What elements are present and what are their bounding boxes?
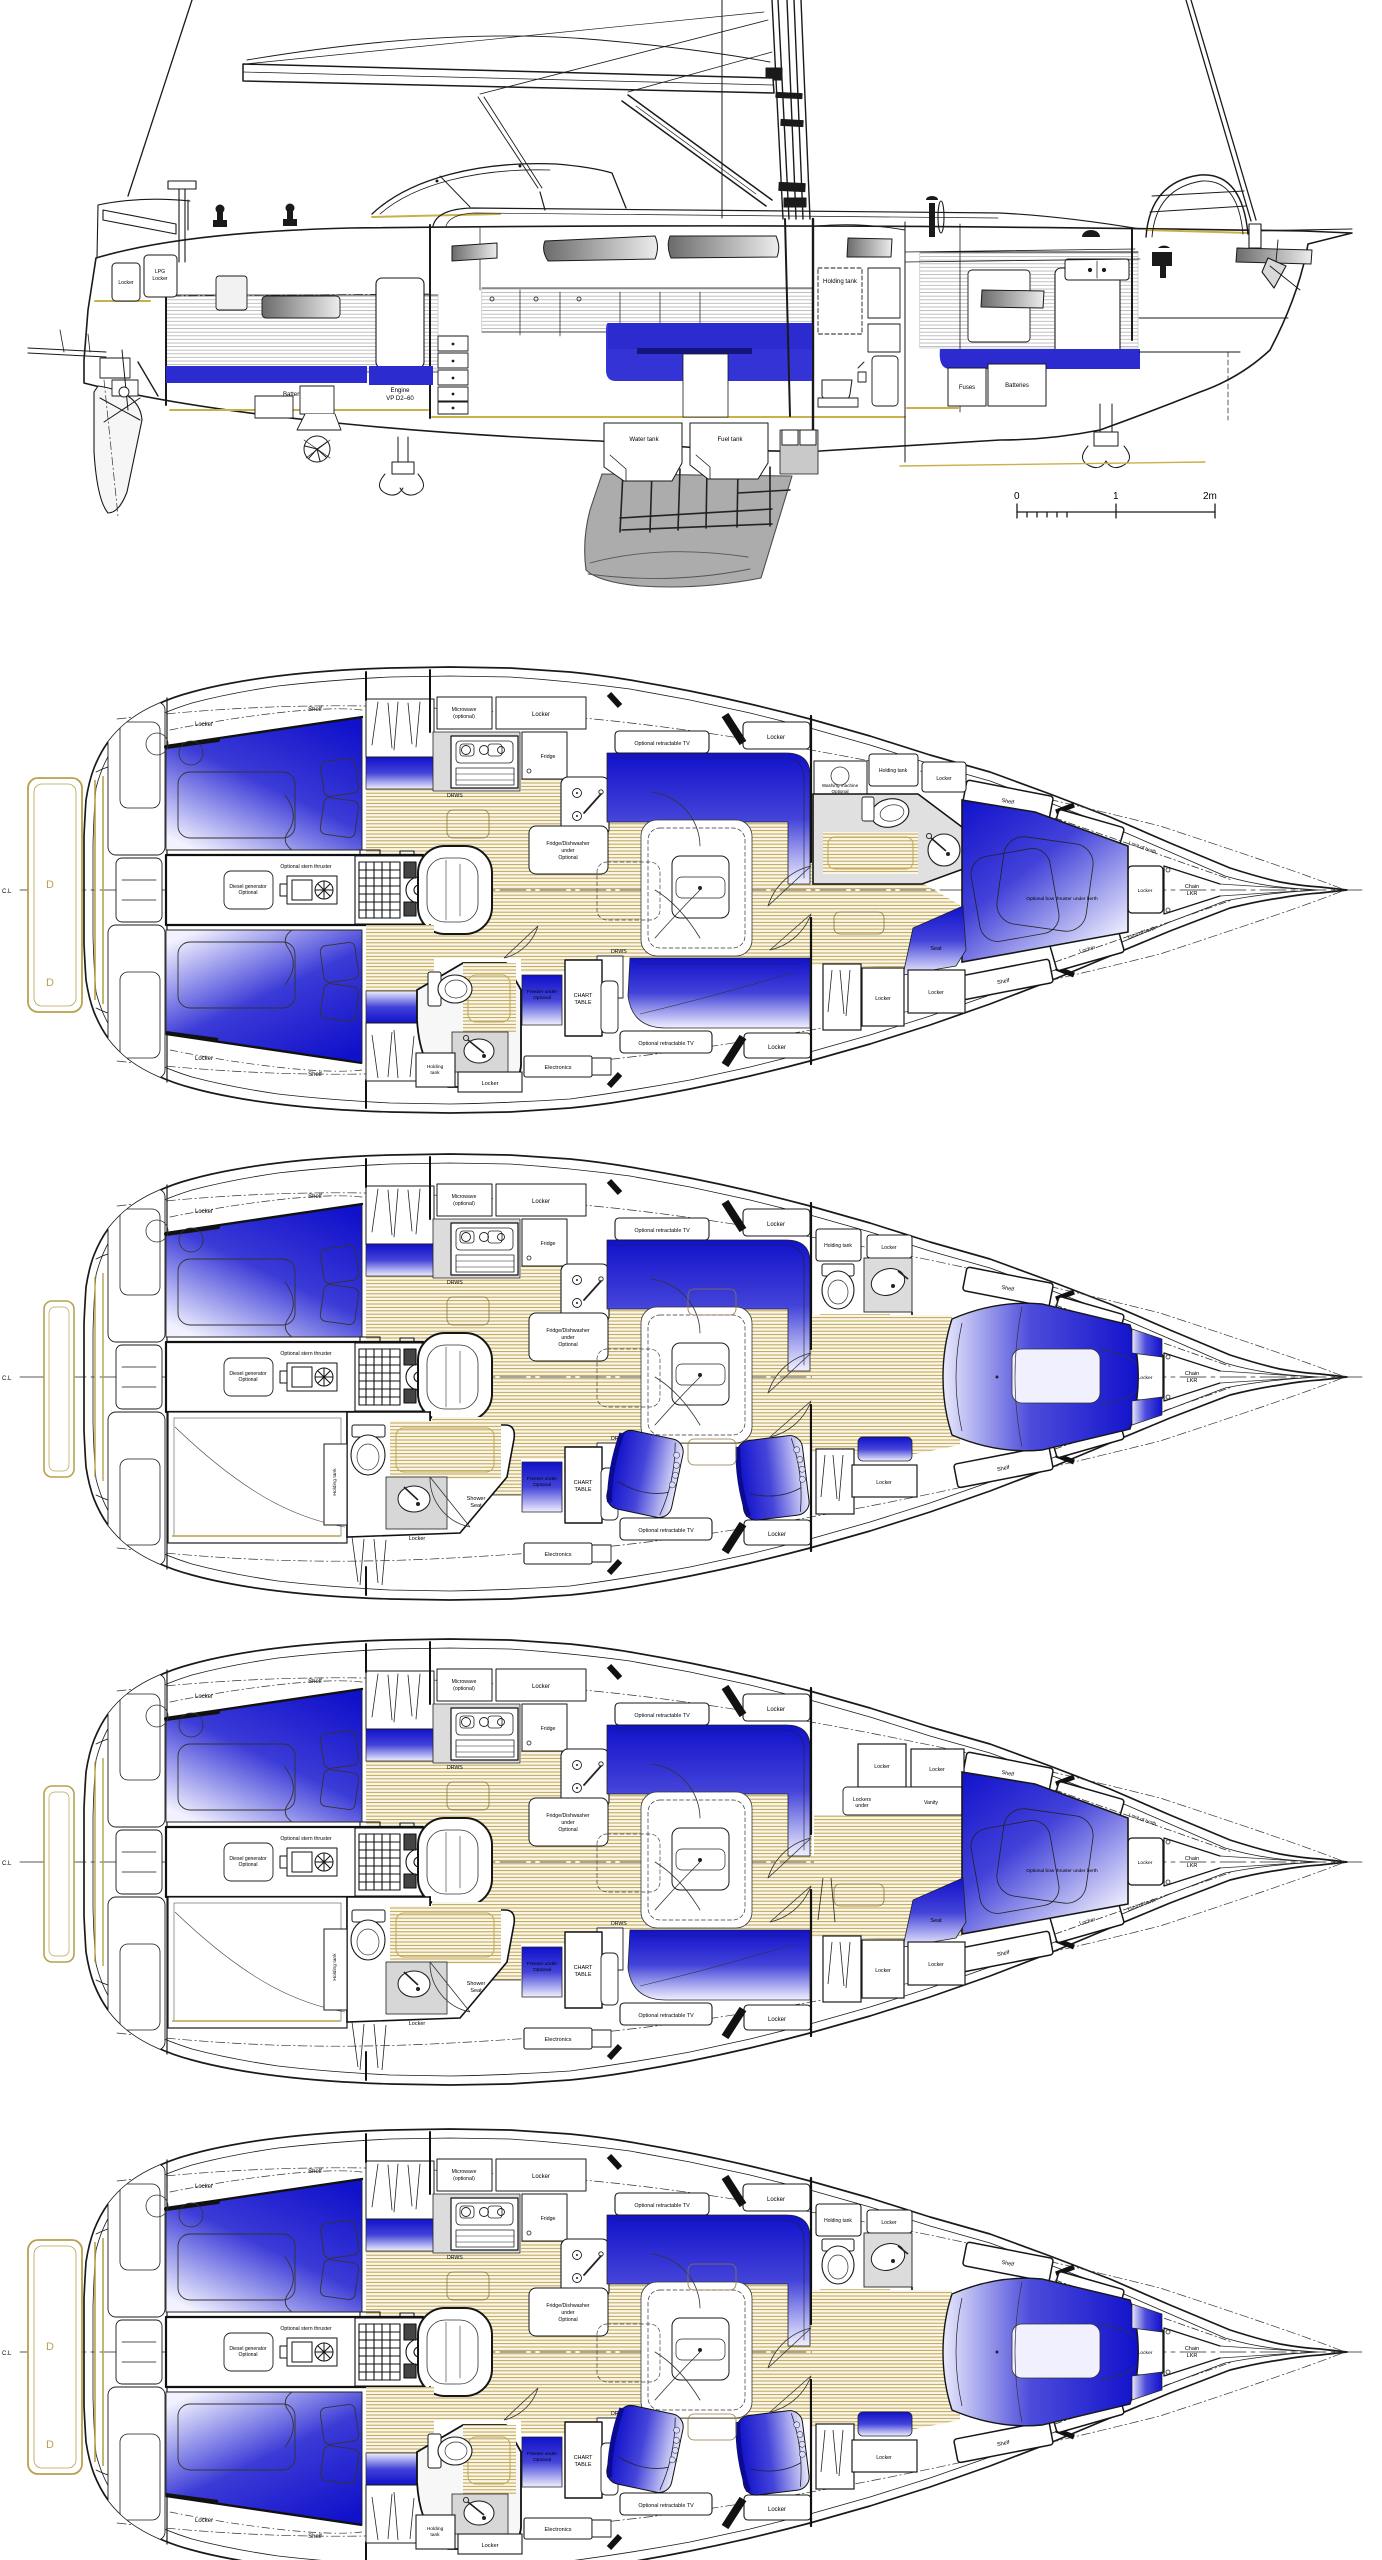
svg-text:LPG: LPG (155, 269, 165, 275)
svg-text:VP D2–60: VP D2–60 (386, 395, 414, 402)
svg-text:Holding tank: Holding tank (823, 278, 858, 285)
svg-text:1: 1 (1113, 491, 1119, 502)
svg-text:Fuel tank: Fuel tank (717, 436, 743, 443)
svg-text:Fuses: Fuses (959, 385, 975, 391)
svg-text:Water tank: Water tank (629, 436, 659, 443)
svg-text:Engine: Engine (391, 387, 411, 394)
svg-text:Batteries: Batteries (1005, 383, 1029, 389)
svg-text:Locker: Locker (152, 276, 168, 282)
svg-text:Locker: Locker (118, 280, 134, 286)
svg-text:0: 0 (1014, 491, 1020, 502)
svg-text:2m: 2m (1203, 491, 1217, 502)
